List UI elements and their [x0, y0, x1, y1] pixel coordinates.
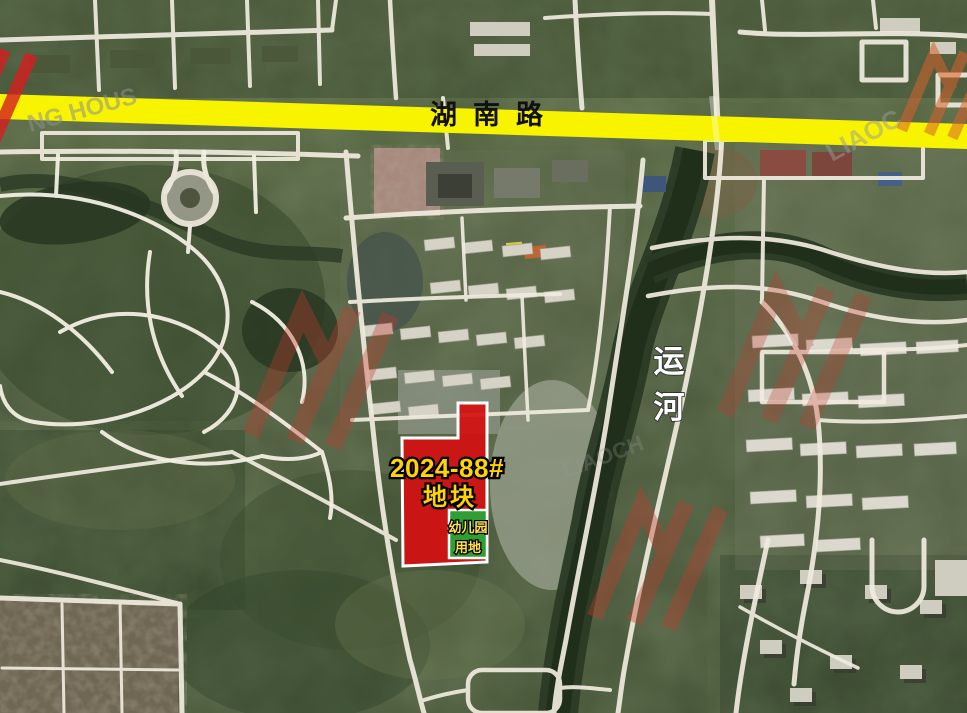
kindergarten-label-line1: 幼儿园 [448, 520, 487, 535]
parcel-word-label: 地块 [423, 484, 477, 511]
satellite-map-canvas: 湖南路 2024-88# 地块 幼儿园 用地 运 河 NG HOUS LIAOC… [0, 0, 967, 713]
parcel-code-label: 2024-88# [390, 453, 504, 483]
canal-label-char1: 运 [654, 344, 685, 379]
kindergarten-label-line2: 用地 [454, 540, 481, 555]
hunan-road-label: 湖南路 [430, 99, 559, 130]
satellite-map[interactable]: 湖南路 2024-88# 地块 幼儿园 用地 运 河 NG HOUS LIAOC… [0, 0, 967, 713]
canal-label-char2: 河 [654, 390, 685, 425]
